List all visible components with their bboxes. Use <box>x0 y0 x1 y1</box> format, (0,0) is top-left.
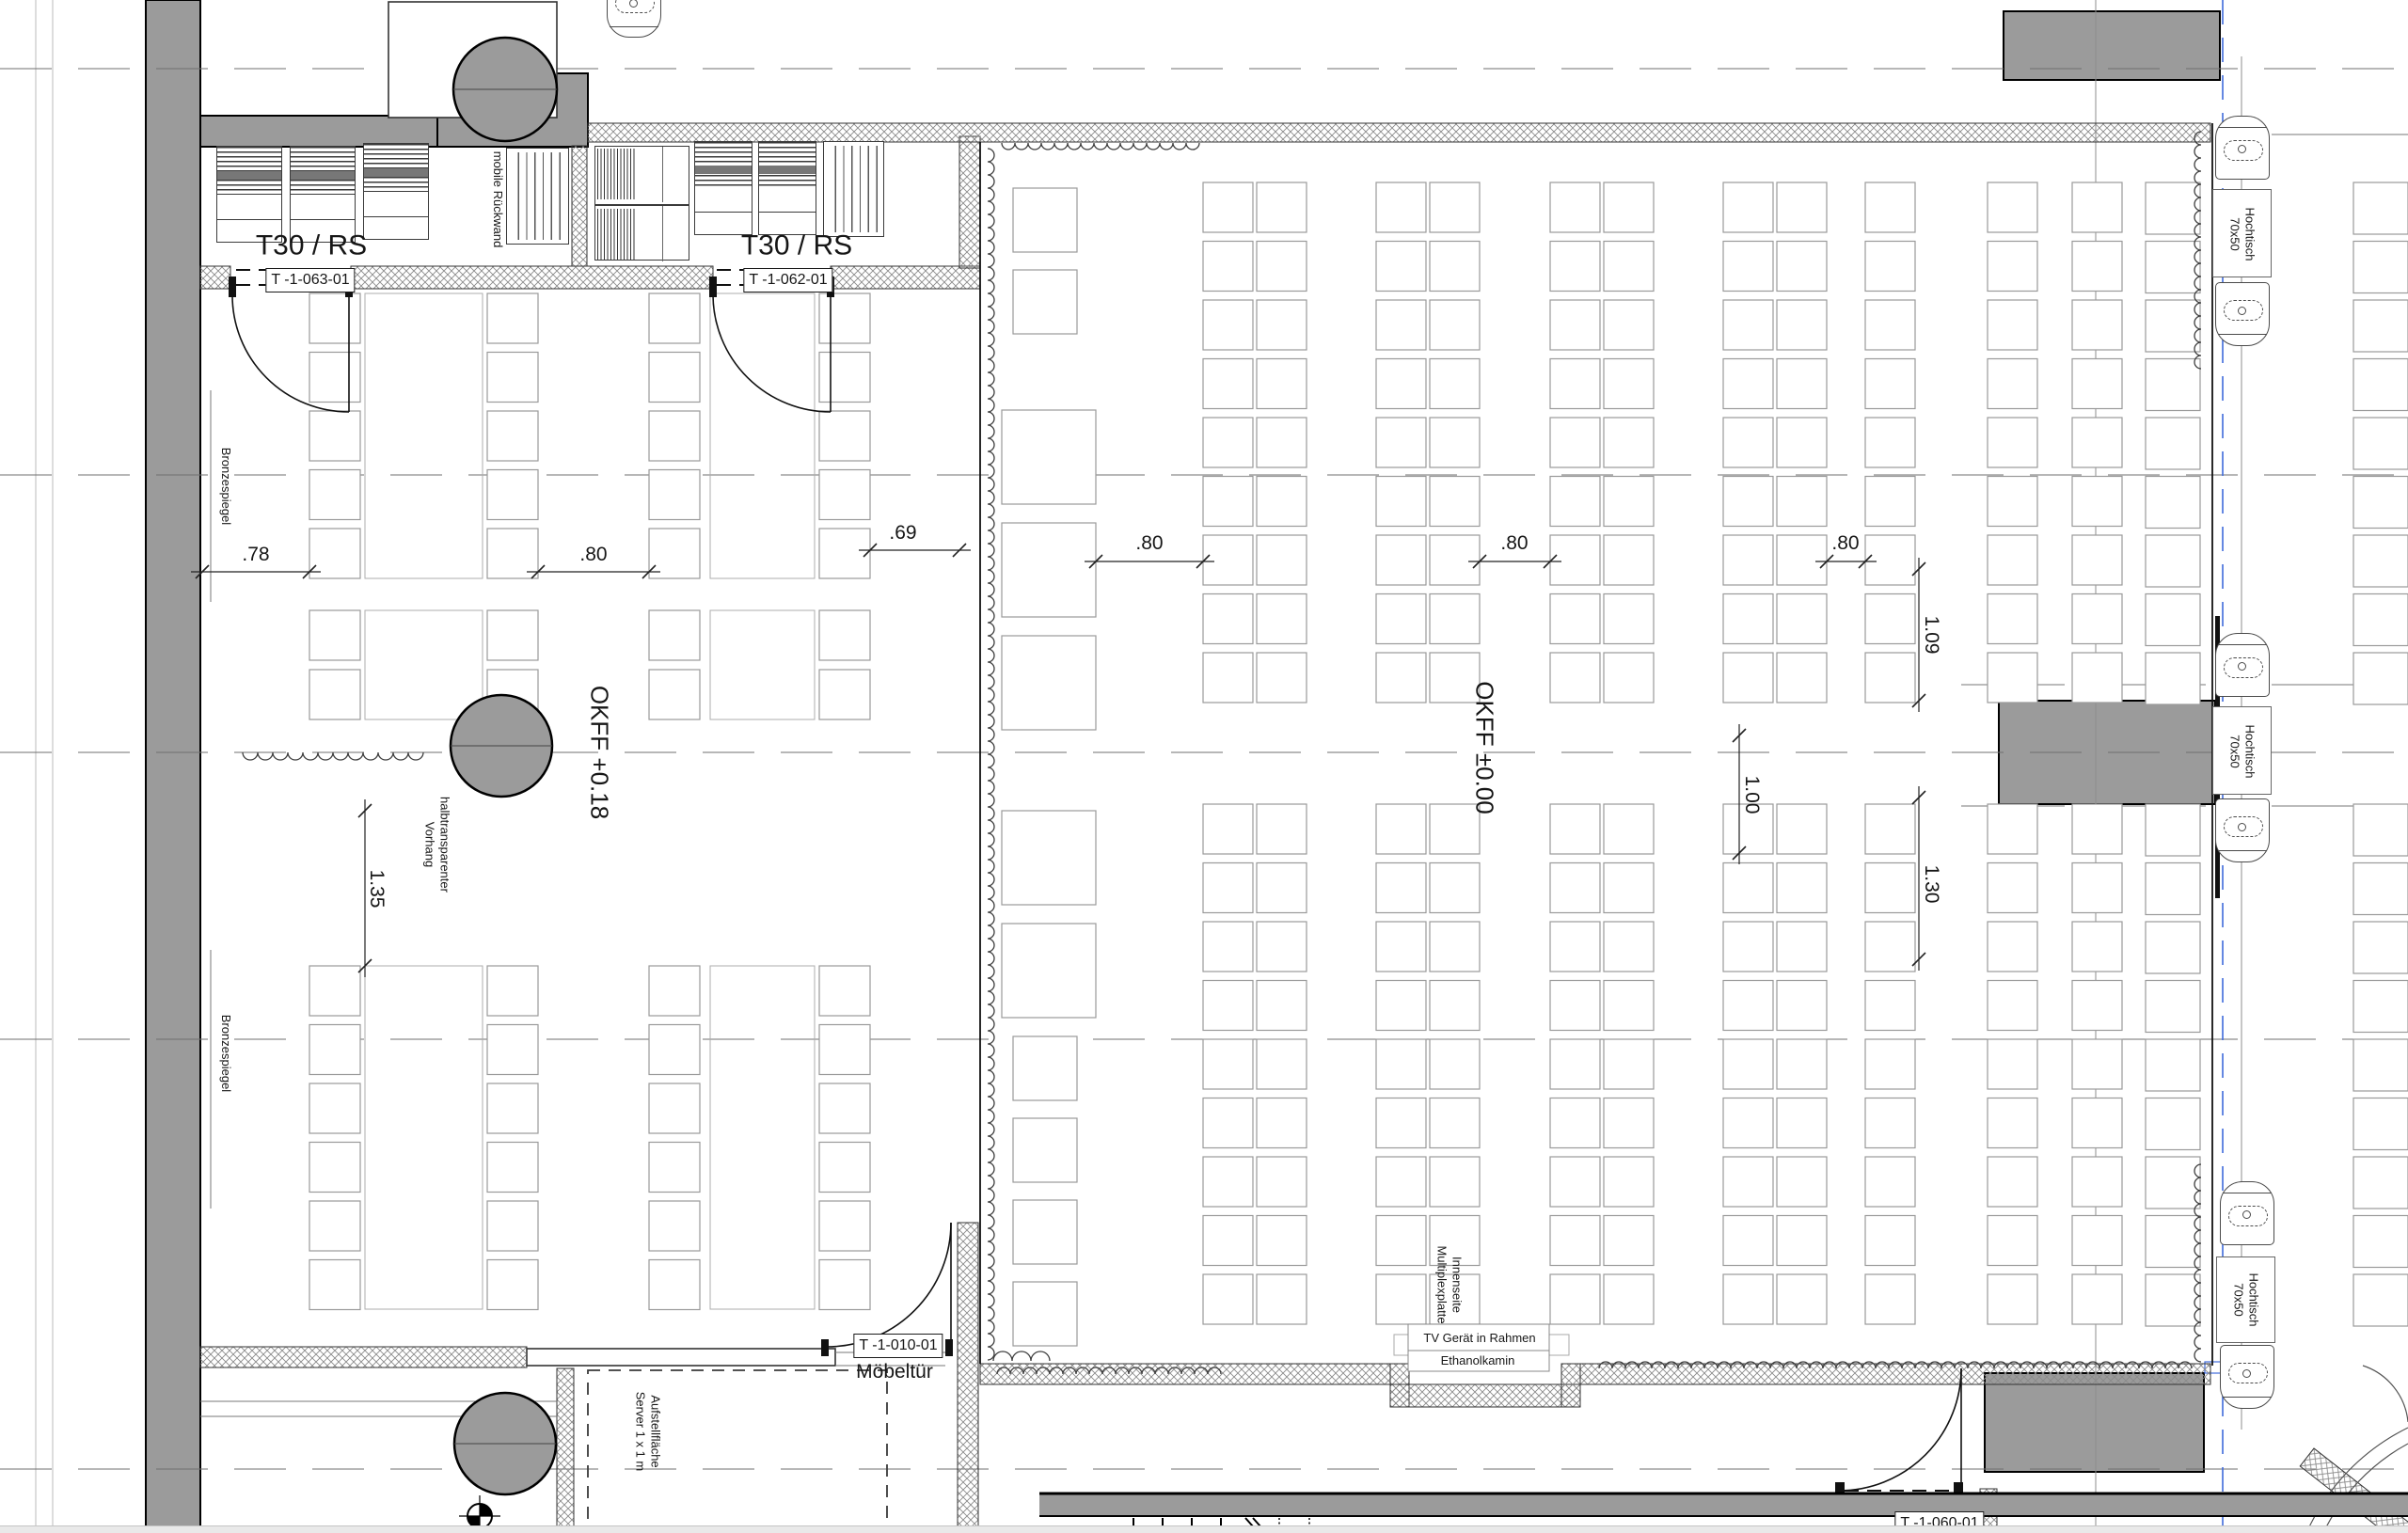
table <box>309 966 360 1016</box>
table <box>1723 653 1773 703</box>
server-label-line-0: Aufstellfläche <box>647 1392 662 1472</box>
table <box>1723 1098 1773 1148</box>
table <box>2146 1098 2200 1150</box>
table <box>2072 981 2122 1031</box>
hatched-wall <box>1580 1364 2210 1384</box>
table <box>1988 300 2037 350</box>
table <box>2146 1157 2200 1209</box>
table <box>1550 1157 1600 1207</box>
table <box>1604 535 1654 585</box>
table <box>1865 535 1915 585</box>
table <box>2146 804 2200 856</box>
server-label: AufstellflächeServer 1 x 1 m <box>632 1392 663 1472</box>
table <box>1723 418 1773 467</box>
table <box>1988 653 2037 703</box>
table <box>309 1143 360 1193</box>
door2-tag: T -1-062-01 <box>743 268 832 292</box>
table <box>1723 1039 1773 1089</box>
table <box>1203 981 1253 1031</box>
bronzespiegel-label-1: Bronzespiegel <box>218 448 233 525</box>
table <box>649 293 700 343</box>
hochtisch-label-3: Hochtisch70x50 <box>2230 1272 2261 1326</box>
dim-130: 1.30 <box>1919 865 1943 904</box>
table <box>1723 1216 1773 1266</box>
table <box>649 1025 700 1075</box>
shelf-detail <box>217 171 281 180</box>
table <box>819 470 870 520</box>
hochtisch-label-3-line-1: 70x50 <box>2230 1272 2245 1326</box>
table <box>1865 1098 1915 1148</box>
table <box>1865 242 1915 292</box>
table <box>1257 477 1307 527</box>
table <box>2072 653 2122 703</box>
shelf-detail <box>364 216 428 217</box>
table <box>1777 653 1827 703</box>
hochtisch-label-1: Hochtisch70x50 <box>2226 207 2257 261</box>
table <box>1550 804 1600 854</box>
chair <box>2215 116 2270 180</box>
table <box>1723 359 1773 409</box>
table <box>1430 418 1480 467</box>
table <box>1203 1098 1253 1148</box>
table <box>1777 182 1827 232</box>
hatched-wall <box>1561 1364 1580 1407</box>
chair-dot <box>2238 823 2246 831</box>
table <box>1002 811 1096 905</box>
panel-stripes <box>511 152 564 240</box>
table <box>2353 1039 2408 1091</box>
table <box>1865 863 1915 913</box>
table <box>2353 804 2408 856</box>
table <box>1988 594 2037 644</box>
table <box>309 470 360 520</box>
table <box>2353 922 2408 973</box>
table <box>1865 1274 1915 1324</box>
hatched-wall <box>1390 1384 1580 1407</box>
table <box>1550 418 1600 467</box>
table <box>1013 1200 1077 1264</box>
hochtisch-label-3-line-0: Hochtisch <box>2245 1272 2260 1326</box>
cabinet-row <box>595 147 689 202</box>
table <box>1604 922 1654 972</box>
hatched-wall <box>200 266 230 289</box>
chair-back-line <box>2223 1193 2273 1193</box>
okff-000-label: OKFF ±0.00 <box>1469 681 1500 814</box>
table <box>1604 804 1654 854</box>
table <box>1257 922 1307 972</box>
table <box>1257 535 1307 585</box>
table <box>487 470 538 520</box>
table <box>1550 182 1600 232</box>
door-swing <box>1839 1368 1961 1491</box>
table <box>1376 981 1426 1031</box>
table <box>1723 535 1773 585</box>
hatched-wall <box>572 146 587 266</box>
table <box>1002 924 1096 1018</box>
table <box>649 470 700 520</box>
chair-dot <box>2242 1369 2251 1378</box>
table-strip <box>710 293 815 578</box>
table <box>1376 535 1426 585</box>
table <box>1604 242 1654 292</box>
table <box>649 610 700 660</box>
table <box>1376 863 1426 913</box>
chair <box>2215 798 2270 862</box>
table <box>1550 1098 1600 1148</box>
table-strip <box>710 610 815 719</box>
table <box>819 1143 870 1193</box>
table <box>1777 418 1827 467</box>
table <box>309 293 360 343</box>
table <box>1777 1274 1827 1324</box>
curtain-line <box>988 149 994 1360</box>
table <box>1203 1274 1253 1324</box>
table <box>1777 863 1827 913</box>
table <box>1257 418 1307 467</box>
table <box>487 1143 538 1193</box>
dim-69: .69 <box>889 521 916 545</box>
okff-018-label: OKFF +0.18 <box>584 686 615 819</box>
table <box>1203 594 1253 644</box>
wall <box>2004 11 2220 80</box>
table <box>1604 653 1654 703</box>
hatched-wall <box>980 1364 1390 1384</box>
table <box>1988 922 2037 972</box>
chair <box>2220 1345 2274 1409</box>
page-bottom-strip <box>0 1525 2408 1533</box>
table <box>2072 1157 2122 1207</box>
table <box>1777 1216 1827 1266</box>
chair-dot <box>2238 307 2246 315</box>
table <box>1865 359 1915 409</box>
table <box>1203 418 1253 467</box>
mobile-rueckwand-label: mobile Rückwand <box>490 151 505 248</box>
table <box>1376 1157 1426 1207</box>
moebeltuer-label: Möbeltür <box>856 1360 933 1384</box>
table <box>1002 523 1096 617</box>
table <box>819 610 870 660</box>
table <box>309 1083 360 1133</box>
shelf-detail <box>695 166 752 174</box>
dim-135: 1.35 <box>364 870 388 909</box>
table <box>487 966 538 1016</box>
table <box>1865 922 1915 972</box>
table <box>1550 981 1600 1031</box>
table <box>1604 594 1654 644</box>
dim-100: 1.00 <box>1739 776 1764 814</box>
table <box>1376 1039 1426 1089</box>
table <box>2353 535 2408 587</box>
cabinet-stripes <box>597 209 637 260</box>
bronzespiegel-label-2: Bronzespiegel <box>218 1015 233 1092</box>
table <box>1013 1036 1077 1100</box>
table <box>819 1025 870 1075</box>
mobile-partition-panel <box>823 141 884 237</box>
shelf-detail <box>759 166 816 174</box>
hatched-wall <box>557 1368 574 1533</box>
curved-wall-line <box>2363 1366 2408 1422</box>
table <box>1430 359 1480 409</box>
door1-tag: T -1-063-01 <box>265 268 355 292</box>
table <box>1723 182 1773 232</box>
shelf-detail <box>291 219 355 220</box>
table <box>2353 182 2408 234</box>
table <box>1550 1216 1600 1266</box>
table <box>1723 594 1773 644</box>
vorhang-label-line-0: halbtransparenter <box>436 797 451 893</box>
table <box>1430 1039 1480 1089</box>
table <box>1257 182 1307 232</box>
table <box>1777 300 1827 350</box>
table <box>1777 535 1827 585</box>
stair-band <box>1039 1493 2408 1516</box>
door2-label: T30 / RS <box>741 228 852 263</box>
shelf-detail <box>759 212 816 213</box>
table <box>819 1201 870 1251</box>
table <box>649 1260 700 1310</box>
hochtisch-label-2-line-1: 70x50 <box>2226 724 2242 778</box>
table <box>1257 594 1307 644</box>
cabinet-unit <box>594 146 689 261</box>
table <box>1257 653 1307 703</box>
table <box>1865 182 1915 232</box>
table <box>819 1260 870 1310</box>
table <box>487 1201 538 1251</box>
floor-plan-drawing: T30 / RST -1-063-01T30 / RST -1-062-01mo… <box>0 0 2408 1533</box>
table <box>2072 804 2122 854</box>
table <box>1988 182 2037 232</box>
door-jamb <box>821 1339 829 1356</box>
table <box>309 411 360 461</box>
table <box>1376 477 1426 527</box>
table <box>2353 981 2408 1033</box>
table <box>2146 922 2200 973</box>
shelf-detail <box>217 219 281 220</box>
table <box>2072 418 2122 467</box>
table <box>2353 477 2408 529</box>
table <box>1257 1216 1307 1266</box>
table <box>309 1201 360 1251</box>
table <box>1430 477 1480 527</box>
table-strip <box>365 293 483 578</box>
table <box>1723 922 1773 972</box>
table <box>1203 653 1253 703</box>
table <box>2353 418 2408 469</box>
innenseite-label: InnenseiteMultiplexplatte <box>1434 1245 1465 1323</box>
table <box>1988 1039 2037 1089</box>
table <box>1430 981 1480 1031</box>
table <box>649 353 700 403</box>
table <box>1777 981 1827 1031</box>
table <box>309 1025 360 1075</box>
table <box>1865 477 1915 527</box>
shelf-unit <box>363 143 429 240</box>
table <box>1988 477 2037 527</box>
table <box>1988 1157 2037 1207</box>
chair <box>2215 633 2270 697</box>
table <box>819 966 870 1016</box>
cabinet-stripes <box>597 149 637 199</box>
table <box>1376 1216 1426 1266</box>
table <box>487 293 538 343</box>
table <box>1988 359 2037 409</box>
table <box>1604 1274 1654 1324</box>
table <box>2146 300 2200 352</box>
table <box>1430 1157 1480 1207</box>
shelf-detail <box>364 144 428 192</box>
table <box>2146 981 2200 1033</box>
table <box>2146 594 2200 646</box>
table <box>1988 1098 2037 1148</box>
table <box>1988 981 2037 1031</box>
table <box>1777 1039 1827 1089</box>
table <box>2072 1216 2122 1266</box>
shelf-detail <box>695 212 752 213</box>
table <box>1376 418 1426 467</box>
table <box>2072 1039 2122 1089</box>
table <box>1203 242 1253 292</box>
table <box>1988 1274 2037 1324</box>
door1-label: T30 / RS <box>256 228 367 263</box>
panel-stripes <box>828 146 879 232</box>
table <box>1777 922 1827 972</box>
table <box>1604 182 1654 232</box>
table <box>1988 242 2037 292</box>
hatched-wall <box>831 266 980 289</box>
table <box>1723 242 1773 292</box>
table <box>1777 477 1827 527</box>
chair-back-line <box>610 26 659 27</box>
curtain-line <box>243 752 423 760</box>
table <box>1203 922 1253 972</box>
server-label-line-1: Server 1 x 1 m <box>632 1392 647 1472</box>
table <box>649 670 700 719</box>
table <box>1777 1098 1827 1148</box>
table <box>1376 182 1426 232</box>
table <box>1203 1039 1253 1089</box>
table <box>1865 1039 1915 1089</box>
door-swing <box>713 295 831 412</box>
table <box>2072 477 2122 527</box>
table <box>1865 1157 1915 1207</box>
table <box>1203 477 1253 527</box>
table <box>2146 535 2200 587</box>
table <box>1550 477 1600 527</box>
table <box>1988 418 2037 467</box>
chair-back-line <box>2218 127 2268 128</box>
table <box>2146 477 2200 529</box>
table <box>1865 981 1915 1031</box>
table <box>1777 804 1827 854</box>
chair-back-line <box>2218 850 2268 851</box>
table <box>1203 300 1253 350</box>
table <box>1257 1157 1307 1207</box>
hatched-wall <box>351 266 713 289</box>
table <box>1723 477 1773 527</box>
table <box>309 353 360 403</box>
table-strip <box>365 610 483 719</box>
table <box>1257 863 1307 913</box>
table <box>2072 594 2122 644</box>
table <box>1013 188 1077 252</box>
cabinet-divider <box>662 147 663 202</box>
table <box>1376 1098 1426 1148</box>
table <box>2353 1098 2408 1150</box>
vorhang-label-line-1: Vorhang <box>421 797 436 893</box>
table <box>649 1201 700 1251</box>
table-strip <box>365 966 483 1309</box>
table <box>1604 981 1654 1031</box>
table <box>819 1083 870 1133</box>
wall <box>1985 1373 2204 1472</box>
table <box>1604 863 1654 913</box>
hatched-wall <box>200 1347 527 1367</box>
chair-back-line <box>2218 644 2268 645</box>
table <box>2353 1274 2408 1326</box>
vorhang-label: halbtransparenterVorhang <box>421 797 452 893</box>
table <box>487 353 538 403</box>
table <box>487 1025 538 1075</box>
table <box>1013 270 1077 334</box>
table <box>1550 594 1600 644</box>
table <box>1865 418 1915 467</box>
table <box>2072 535 2122 585</box>
moebeltuer-tag: T -1-010-01 <box>853 1334 943 1358</box>
table <box>1203 1157 1253 1207</box>
table <box>1257 1039 1307 1089</box>
table <box>1550 863 1600 913</box>
dim-80c: .80 <box>1500 531 1528 556</box>
table <box>1203 535 1253 585</box>
curtain-line <box>1002 143 1199 150</box>
table <box>819 670 870 719</box>
table <box>1865 1216 1915 1266</box>
table <box>1604 418 1654 467</box>
table <box>2353 1157 2408 1209</box>
table <box>649 1143 700 1193</box>
table <box>309 670 360 719</box>
table <box>1257 981 1307 1031</box>
table <box>649 1083 700 1133</box>
table <box>1723 863 1773 913</box>
table <box>2353 1216 2408 1268</box>
table <box>487 529 538 578</box>
cabinet-divider <box>662 206 663 261</box>
table <box>819 411 870 461</box>
table <box>2146 1274 2200 1326</box>
table <box>2146 182 2200 234</box>
cabinet-row <box>595 204 689 261</box>
table <box>1865 804 1915 854</box>
table <box>2353 359 2408 411</box>
table <box>309 1260 360 1310</box>
table <box>1257 300 1307 350</box>
kamin-label: Ethanolkamin <box>1441 1353 1515 1368</box>
table <box>2146 863 2200 915</box>
table <box>1376 242 1426 292</box>
table <box>819 529 870 578</box>
table <box>1604 359 1654 409</box>
table <box>1550 242 1600 292</box>
table <box>1430 1098 1480 1148</box>
table <box>1002 636 1096 730</box>
table <box>1430 863 1480 913</box>
table <box>1777 242 1827 292</box>
table <box>309 529 360 578</box>
table <box>1550 300 1600 350</box>
door-jamb <box>709 277 717 297</box>
table <box>487 1260 538 1310</box>
